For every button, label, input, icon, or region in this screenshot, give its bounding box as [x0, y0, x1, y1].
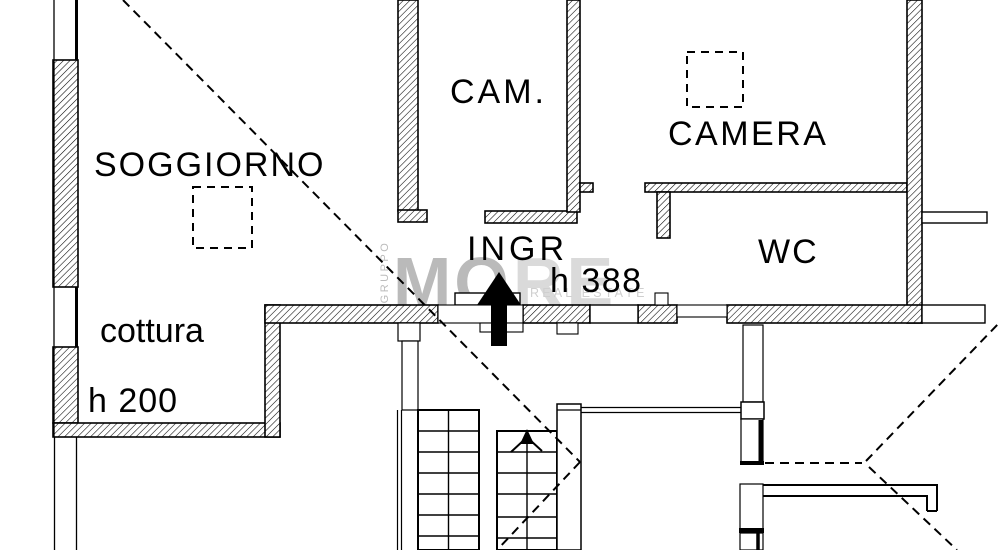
wall-wc-left-stub: [657, 192, 670, 238]
east-window-upper: [922, 212, 987, 223]
watermark-gruppo: GRUPPO: [379, 241, 391, 304]
east-window-lower: [922, 305, 985, 323]
floor-plan-canvas: GRUPPO MO RE REAL ESTATE: [0, 0, 1000, 550]
hall-notch: [557, 323, 578, 334]
pier-segment: [740, 484, 763, 529]
wall-cam-left: [398, 0, 418, 211]
wall-cam-right-tab: [580, 183, 593, 192]
stair-flight-left: [418, 410, 479, 550]
wc-door-threshold: [677, 305, 727, 317]
roof-slope-line: [866, 322, 1000, 461]
parapet-line: [763, 485, 937, 511]
entrance-arrow-shaft: [491, 303, 507, 346]
wall-right: [907, 0, 922, 323]
label-cottura: cottura: [100, 312, 204, 350]
wall-hall-2: [523, 305, 590, 323]
pier-cap: [739, 528, 764, 533]
hall-window: [590, 305, 638, 323]
stair-column-left: [402, 341, 418, 410]
wall-cam-left-foot: [398, 210, 427, 222]
pier-segment: [741, 402, 764, 419]
stair-column-right: [557, 404, 581, 550]
wall-cam-right: [567, 0, 580, 212]
balcony-parapet: [763, 485, 937, 511]
roof-slope-line: [869, 467, 957, 550]
stairwell: [398, 323, 938, 550]
wall-soggiorno-bottom: [53, 423, 280, 437]
wall-hall-3: [638, 305, 677, 323]
floor-plan: GRUPPO MO RE REAL ESTATE: [0, 0, 1000, 550]
wall-hall-1: [265, 305, 438, 323]
right-pier: [739, 325, 764, 550]
skylight-camera: [687, 52, 743, 107]
wall-left-lower: [53, 347, 78, 423]
wall-wc-top: [645, 183, 907, 192]
wall-soggiorno-right: [265, 305, 280, 437]
label-wc: WC: [758, 233, 819, 271]
wall-hall-4: [727, 305, 922, 323]
annotation-h200: h 200: [88, 382, 178, 420]
wc-door-jamb: [655, 293, 668, 305]
skylight-soggiorno: [193, 187, 252, 248]
entry-threshold: [438, 305, 523, 323]
label-camera: CAMERA: [668, 115, 828, 153]
label-soggiorno: SOGGIORNO: [94, 146, 325, 184]
label-cam: CAM.: [450, 73, 547, 111]
annotation-h388: h 388: [550, 262, 643, 300]
stair-column-left-top: [398, 323, 420, 341]
walls: [53, 0, 922, 437]
stair-flight-right: [497, 429, 557, 550]
wall-cam-bottom: [485, 211, 577, 223]
pier-segment: [743, 325, 763, 402]
wall-left-upper: [53, 60, 78, 287]
pier-cap: [740, 461, 764, 465]
